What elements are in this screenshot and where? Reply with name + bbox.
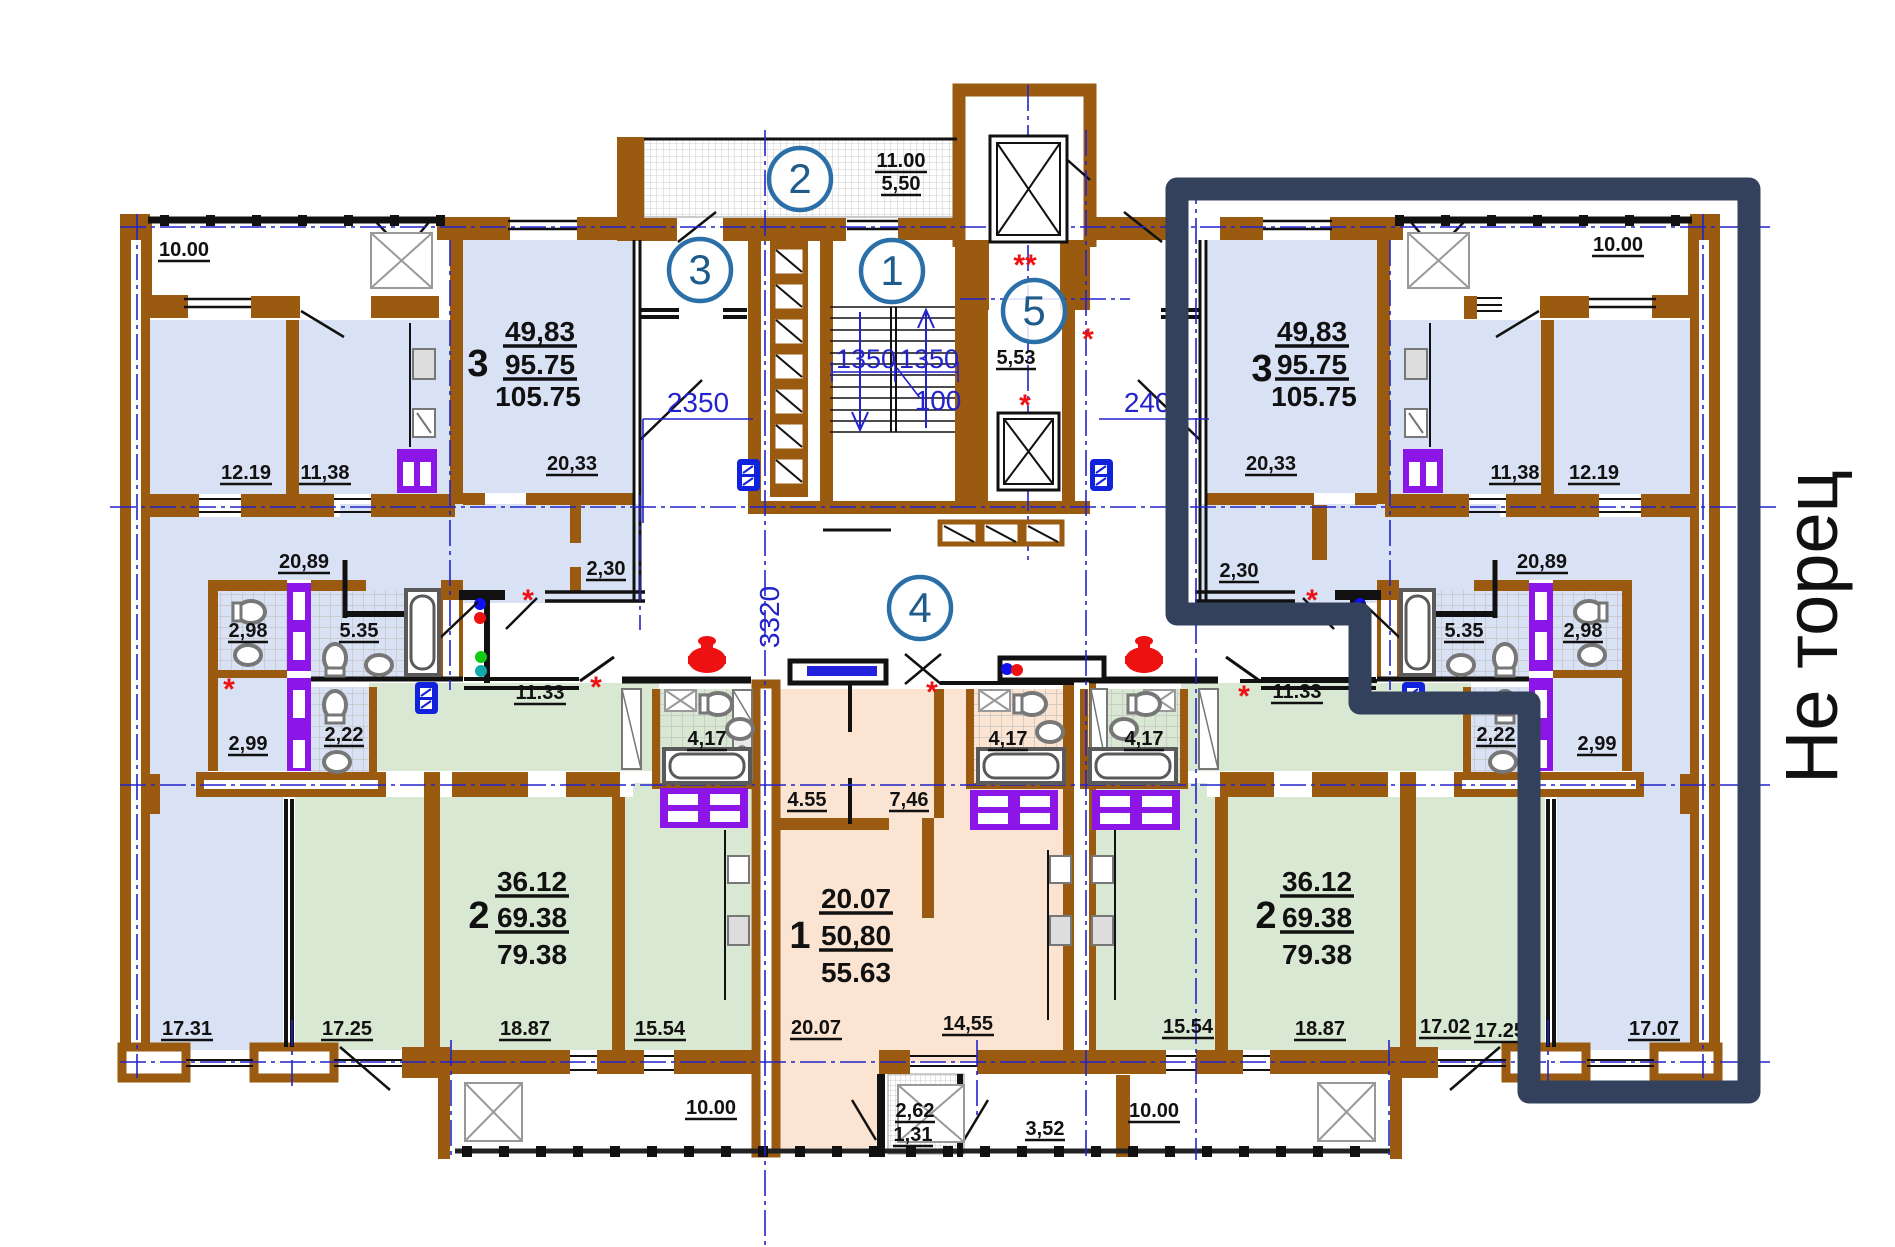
svg-text:10.00: 10.00 <box>159 239 209 261</box>
svg-text:20.07: 20.07 <box>821 883 891 914</box>
svg-text:1350: 1350 <box>836 344 896 374</box>
svg-text:*: * <box>522 584 534 617</box>
svg-text:95.75: 95.75 <box>505 349 575 380</box>
svg-text:5.35: 5.35 <box>1445 620 1484 642</box>
svg-text:11.33: 11.33 <box>516 682 565 704</box>
svg-text:2,22: 2,22 <box>325 724 364 746</box>
svg-text:69.38: 69.38 <box>1282 902 1352 933</box>
svg-text:3: 3 <box>688 246 711 293</box>
svg-text:55.63: 55.63 <box>821 957 891 988</box>
svg-text:79.38: 79.38 <box>497 939 567 970</box>
svg-text:10.00: 10.00 <box>1129 1100 1179 1122</box>
svg-text:1: 1 <box>880 247 903 294</box>
svg-text:3320: 3320 <box>754 586 785 648</box>
svg-text:2: 2 <box>468 895 489 937</box>
svg-text:5,53: 5,53 <box>997 347 1036 369</box>
svg-text:10.00: 10.00 <box>1593 234 1643 256</box>
svg-text:49,83: 49,83 <box>1277 316 1347 347</box>
svg-text:2,98: 2,98 <box>1564 620 1603 642</box>
svg-text:*: * <box>1082 323 1094 356</box>
svg-text:17.25: 17.25 <box>322 1018 372 1040</box>
svg-text:3: 3 <box>1251 348 1272 390</box>
svg-text:17.02: 17.02 <box>1420 1016 1470 1038</box>
svg-text:*: * <box>590 671 602 704</box>
svg-text:49,83: 49,83 <box>505 316 575 347</box>
svg-text:20,89: 20,89 <box>279 551 329 573</box>
svg-text:1,31: 1,31 <box>894 1124 933 1146</box>
svg-text:4.55: 4.55 <box>788 789 827 811</box>
svg-text:10.00: 10.00 <box>686 1097 736 1119</box>
svg-text:4,17: 4,17 <box>989 728 1028 750</box>
svg-text:20.07: 20.07 <box>791 1017 841 1039</box>
svg-text:20,33: 20,33 <box>547 453 597 475</box>
svg-text:5,50: 5,50 <box>882 173 921 195</box>
svg-text:4,17: 4,17 <box>688 728 727 750</box>
svg-text:3: 3 <box>467 343 488 385</box>
svg-text:2,99: 2,99 <box>229 733 268 755</box>
svg-text:11,38: 11,38 <box>301 462 350 484</box>
svg-text:36.12: 36.12 <box>1282 866 1352 897</box>
svg-text:36.12: 36.12 <box>497 866 567 897</box>
svg-text:79.38: 79.38 <box>1282 939 1352 970</box>
svg-text:15.54: 15.54 <box>1163 1016 1214 1038</box>
svg-text:69.38: 69.38 <box>497 902 567 933</box>
svg-text:1350: 1350 <box>899 344 959 374</box>
svg-text:50,80: 50,80 <box>821 920 891 951</box>
svg-text:18.87: 18.87 <box>1295 1018 1345 1040</box>
svg-text:11,38: 11,38 <box>1491 462 1540 484</box>
svg-text:20,33: 20,33 <box>1246 453 1296 475</box>
svg-text:5.35: 5.35 <box>340 620 379 642</box>
svg-text:15.54: 15.54 <box>635 1018 686 1040</box>
svg-text:2,30: 2,30 <box>587 558 626 580</box>
svg-text:95.75: 95.75 <box>1277 349 1347 380</box>
svg-text:12.19: 12.19 <box>1569 462 1619 484</box>
svg-text:2,99: 2,99 <box>1578 733 1617 755</box>
svg-text:2,30: 2,30 <box>1220 560 1259 582</box>
svg-text:**: ** <box>1013 249 1037 282</box>
svg-text:*: * <box>223 673 235 706</box>
svg-text:11.00: 11.00 <box>877 150 926 172</box>
svg-text:*: * <box>926 676 938 709</box>
svg-text:2,22: 2,22 <box>1477 724 1516 746</box>
svg-text:12.19: 12.19 <box>221 462 271 484</box>
svg-text:2350: 2350 <box>667 387 729 418</box>
svg-text:3,52: 3,52 <box>1026 1118 1065 1140</box>
svg-text:7,46: 7,46 <box>890 789 929 811</box>
svg-text:2: 2 <box>1255 895 1276 937</box>
svg-text:17.07: 17.07 <box>1629 1018 1679 1040</box>
svg-text:100: 100 <box>915 385 962 416</box>
svg-text:17.31: 17.31 <box>162 1018 212 1040</box>
svg-text:1: 1 <box>789 915 810 957</box>
svg-text:Не торец: Не торец <box>1770 470 1853 784</box>
svg-text:105.75: 105.75 <box>495 381 581 412</box>
svg-text:5: 5 <box>1022 287 1045 334</box>
svg-text:105.75: 105.75 <box>1271 381 1357 412</box>
svg-text:4,17: 4,17 <box>1125 728 1164 750</box>
svg-text:18.87: 18.87 <box>500 1018 550 1040</box>
svg-text:2,98: 2,98 <box>229 620 268 642</box>
svg-text:14,55: 14,55 <box>943 1013 993 1035</box>
svg-text:*: * <box>1238 680 1250 713</box>
svg-text:11.33: 11.33 <box>1273 681 1322 703</box>
svg-text:2: 2 <box>788 155 811 202</box>
svg-text:*: * <box>1019 389 1031 422</box>
svg-text:2,62: 2,62 <box>896 1100 935 1122</box>
svg-text:4: 4 <box>908 584 931 631</box>
svg-text:20,89: 20,89 <box>1517 551 1567 573</box>
